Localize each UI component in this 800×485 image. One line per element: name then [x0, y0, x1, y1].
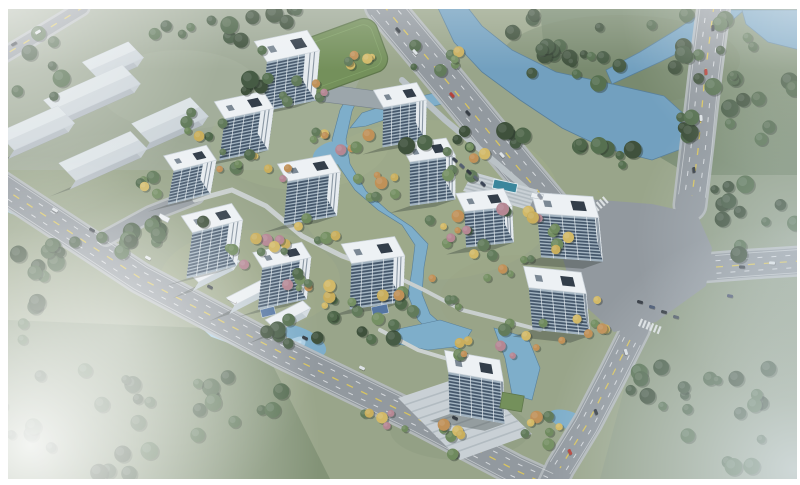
aerial-rendering-canvas	[0, 0, 800, 485]
rendering-frame	[0, 0, 800, 485]
atmosphere	[0, 0, 800, 485]
scene-root	[0, 0, 800, 485]
